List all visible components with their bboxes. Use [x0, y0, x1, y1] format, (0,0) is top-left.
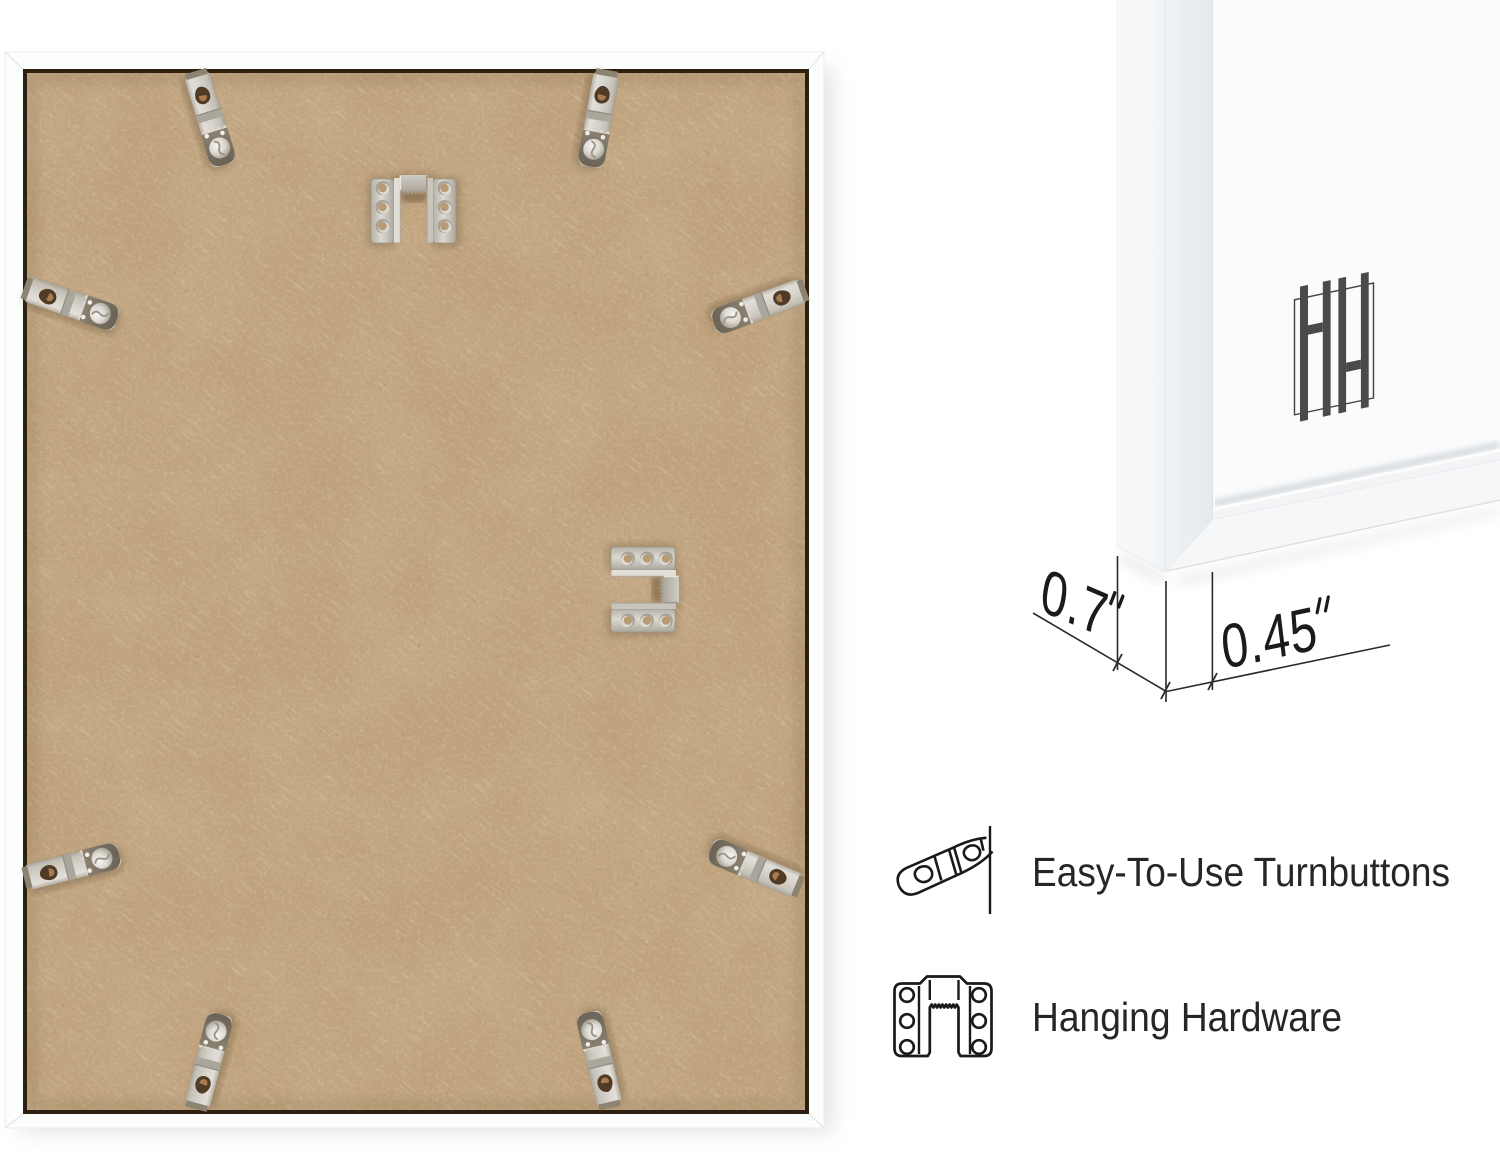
svg-text:0.45: 0.45	[1217, 593, 1321, 682]
svg-text:0.7: 0.7	[1036, 554, 1113, 651]
svg-text:Easy-To-Use Turnbuttons: Easy-To-Use Turnbuttons	[1032, 849, 1450, 895]
svg-text:Hanging Hardware: Hanging Hardware	[1032, 994, 1342, 1040]
